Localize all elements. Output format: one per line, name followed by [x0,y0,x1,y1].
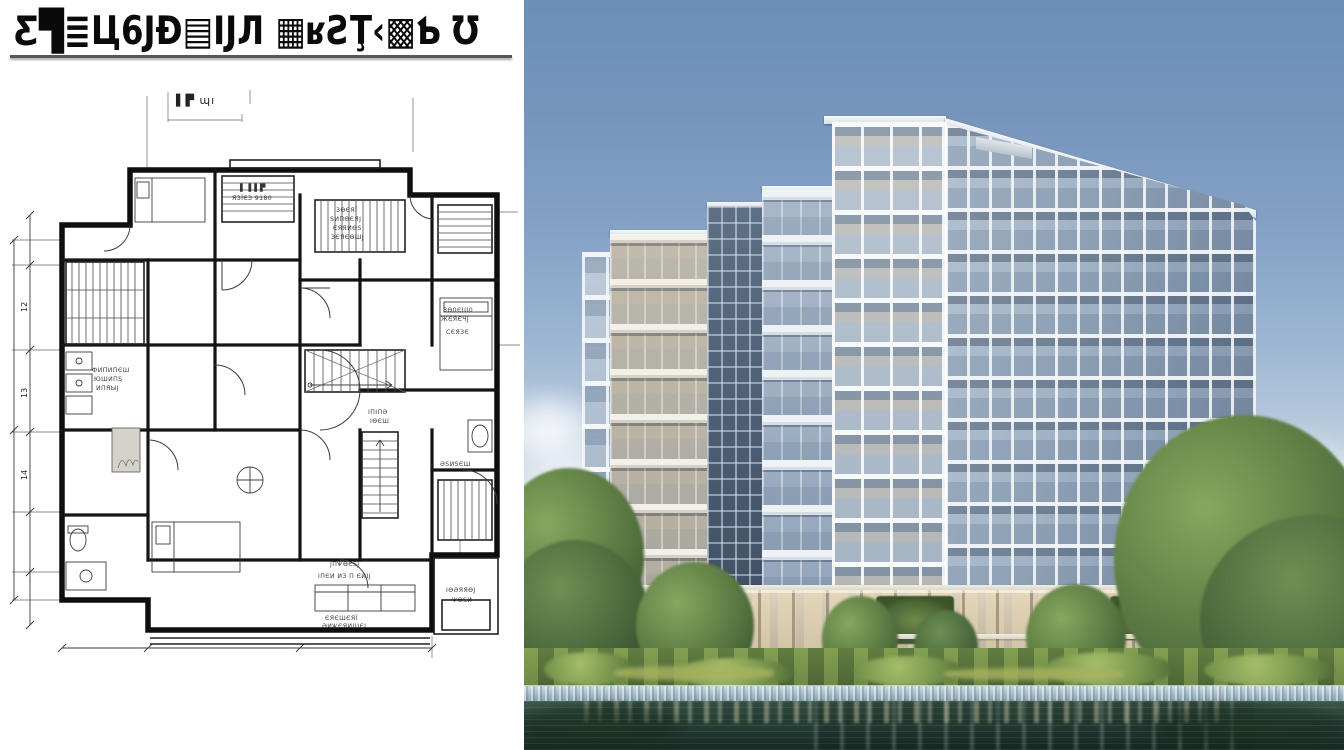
staircase-vertical [362,432,398,518]
room-label: ЖЄЯЄЧЈ [441,316,469,323]
architectural-presentation: Ƹ▜≣Ц6ЈƉ▤ĲЛ ▦ʁƧŢ‹▩Ƅ Ʊ ▌▛ ɰı 12 13 14 [0,0,1344,750]
room-label: ѰѲЅИ [452,597,472,604]
room-label: ӘИѰЄЯИШЄЈ [322,623,366,630]
room-label: ЗѲЄЯЇ [336,205,357,214]
washbasin [468,420,492,452]
corner-label: ▌▛ ɰı [175,93,215,107]
room-label: ЗЄЯЄѲШЈ [331,234,364,241]
room-label: ИПЯЫЈ [96,385,119,392]
building-render-panel [524,0,1344,750]
lawn-patch [614,666,774,680]
room-label: ▌▐ ▌▛ [239,183,266,192]
bush [1204,654,1334,686]
bed [135,178,205,222]
corner-pilaster [942,122,947,664]
toilet [68,526,88,551]
room-label: ІѲӘЯЯѲЈ [446,587,476,594]
plan-title-text: Ƹ▜≣Ц6ЈƉ▤ĲЛ ▦ʁƧŢ‹▩Ƅ Ʊ [14,4,502,61]
construction-lines [12,96,520,658]
room-label: ЄЯЄШЄЯЇ [325,613,358,622]
room-label: ЅИПѲЄЯЈ [330,216,361,223]
sofa [315,585,415,611]
dimension-chain-left: 12 13 14 [10,211,34,629]
dim-number: 12 [20,302,29,312]
sink-counter [66,562,106,590]
room-label: ЄЯЯИѲЅ [333,225,362,232]
room-label: ЯЗЇЄЗ 9180 [232,193,272,202]
dim-number: 13 [20,388,29,398]
room-label: ІПЄИ ИЗ П ЄИІЈ [318,573,371,580]
floor-plan-panel: Ƹ▜≣Ц6ЈƉ▤ĲЛ ▦ʁƧŢ‹▩Ƅ Ʊ ▌▛ ɰı 12 13 14 [0,0,524,750]
dim-number: 14 [20,470,29,480]
lawn-patch [944,668,1124,680]
corner-label-group: ▌▛ ɰı [168,90,250,122]
tower-main-left-face [832,122,946,664]
floor-plan-drawing: ▌▛ ɰı 12 13 14 [0,60,524,750]
kitchen-units [66,352,92,414]
room-label: СЄЯЗЄ [446,329,469,336]
room-label: ІѲЄШ [370,418,389,425]
room-label: ЗѲ0ЄШ0 [443,307,473,314]
room-label: ЮШИПЅ [94,376,123,383]
table [237,467,263,493]
bed [152,522,240,572]
room-label: ЈПѰѲЄЅЈ [329,561,360,568]
room-label: ФИПИПЄШ [92,367,130,374]
room-label: ӘЅИЅЄШ [440,461,471,468]
room-label: ІПІПӘ [368,409,388,416]
title-underline [10,55,512,58]
planter [112,428,140,472]
furniture [66,178,492,611]
water-shimmer [524,701,1344,750]
inner-walls [62,170,497,560]
dimension-chain-bottom [58,644,436,652]
